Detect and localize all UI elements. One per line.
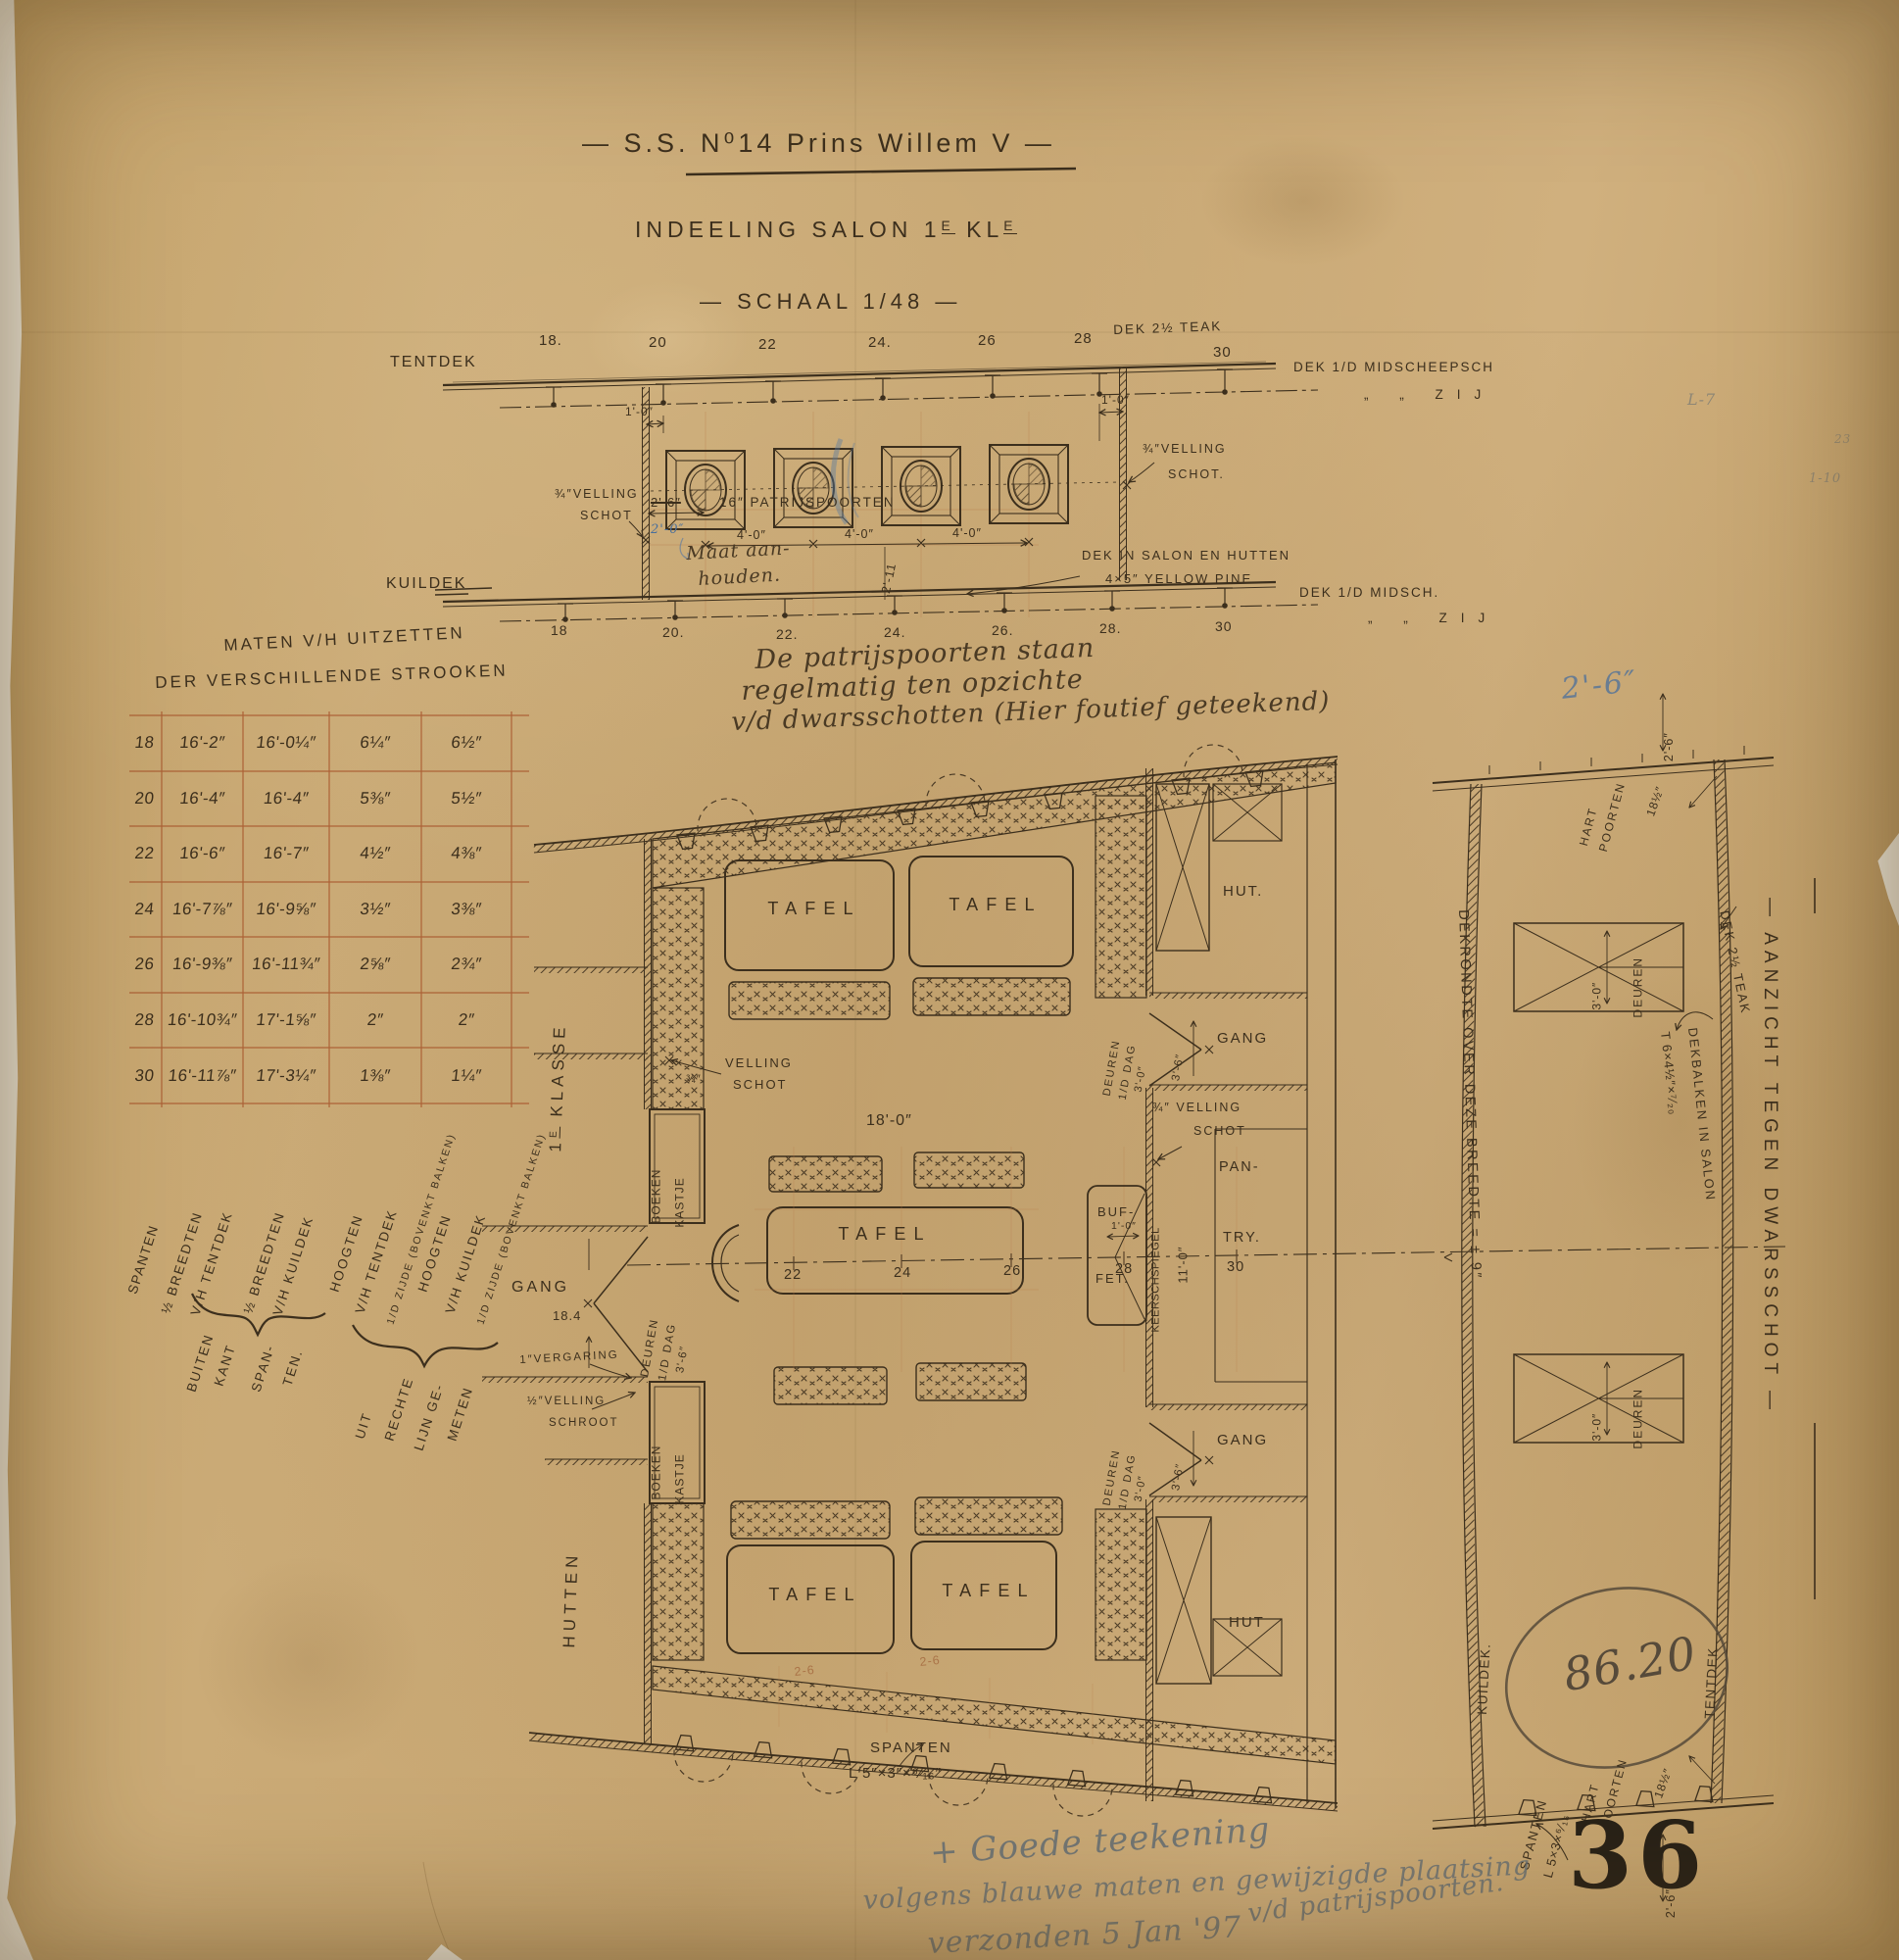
patrijspoorten-label: 16″ PATRIJSPOORTEN bbox=[719, 496, 896, 510]
frame-number-top: 30 bbox=[1213, 345, 1232, 361]
table-cell: 2⅝″ bbox=[326, 937, 424, 993]
dim-4ft: 4'-0″ bbox=[952, 527, 982, 540]
velling-schot-plan-label2: SCHOT bbox=[733, 1078, 788, 1092]
table-cell: 5½″ bbox=[418, 771, 514, 827]
spanten-profile-plan: L 5″×3″×⁶⁄₁₆″ bbox=[849, 1766, 942, 1782]
salon-width-dim: 18'-0″ bbox=[866, 1113, 912, 1130]
table-label: TAFEL bbox=[821, 1225, 949, 1244]
frame-number-bottom: 24. bbox=[884, 625, 905, 640]
table-cell: 6¼″ bbox=[326, 715, 424, 771]
table-label: TAFEL bbox=[751, 900, 878, 918]
mirror-label: KEERSCHSPIEGEL bbox=[1150, 1227, 1162, 1332]
pantry-width-dim: 11'-0″ bbox=[1176, 1247, 1190, 1284]
velling-frac-label: ¾″ bbox=[686, 1074, 702, 1086]
frame-number-bottom: 28. bbox=[1099, 621, 1121, 636]
drawing-subtitle: INDEELING SALON 1E KLE bbox=[635, 218, 1017, 241]
velling-schot-right-plan: ¾″ VELLING bbox=[1152, 1102, 1242, 1114]
table-cell: 2″ bbox=[326, 993, 424, 1049]
table-cell: 16'-7″ bbox=[240, 826, 332, 882]
drawing-title: — S.S. N⁰14 Prins Willem V — bbox=[582, 129, 1055, 157]
table-cell: 16'-9⅝″ bbox=[240, 882, 332, 938]
sheet-number-stamp: 36 bbox=[1568, 1807, 1707, 1905]
table-cell: 16'-9⅜″ bbox=[159, 937, 246, 993]
dek-midsch-label: DEK 1/D MIDSCH. bbox=[1299, 586, 1439, 600]
margin-scribble: L-7 bbox=[1687, 392, 1716, 409]
table-cell: 5⅜″ bbox=[326, 771, 424, 827]
frame-number-top: 26 bbox=[978, 333, 997, 349]
centerline-frame: 22 bbox=[784, 1268, 802, 1283]
frame-number-top: 22 bbox=[758, 337, 777, 353]
dek-midscheepsch-label: DEK 1/D MIDSCHEEPSCH bbox=[1293, 361, 1494, 374]
velling-schroot-label: ½″VELLING bbox=[527, 1396, 606, 1407]
ditto-zij-label2: „ „ ZIJ bbox=[1368, 612, 1498, 625]
ditto-zij-label: „ „ ZIJ bbox=[1364, 388, 1494, 402]
dim-2ft6-crossed: 2'-6″ bbox=[651, 496, 681, 510]
table-cell: 30 bbox=[124, 1049, 165, 1104]
title-underline bbox=[686, 169, 1076, 174]
table-label: TAFEL bbox=[925, 1582, 1052, 1600]
frame-number-top: 20 bbox=[649, 335, 667, 351]
dim-4ft: 4'-0″ bbox=[845, 528, 874, 541]
frame-number-bottom: 20. bbox=[662, 625, 684, 640]
section-linework bbox=[1433, 694, 1815, 1901]
buffet-dim: 1'-0″ bbox=[1111, 1221, 1137, 1232]
bookcase-label: BOEKEN bbox=[650, 1445, 662, 1500]
deuren-label-section: DEUREN bbox=[1631, 1388, 1644, 1449]
buffet-label: BUF- bbox=[1097, 1205, 1135, 1219]
table-cell: 16'-11¾″ bbox=[240, 937, 332, 993]
aanzicht-title: — AANZICHT TEGEN DWARSSCHOT — bbox=[1760, 898, 1779, 1415]
table-cell: 2″ bbox=[418, 993, 514, 1049]
drawing-scale: — SCHAAL 1/48 — bbox=[700, 290, 961, 313]
velling-schroot-label2: SCHROOT bbox=[549, 1417, 619, 1429]
margin-scribble: 23 bbox=[1834, 433, 1851, 446]
table-cell: 16'-4″ bbox=[240, 771, 332, 827]
gang-left-dim: 18.4 bbox=[553, 1309, 581, 1323]
dim-2ft0-pencil: 2'-0″ bbox=[651, 523, 684, 537]
table-cell: 16'-10¾″ bbox=[159, 993, 246, 1049]
hut-top-label: HUT. bbox=[1223, 884, 1263, 900]
table-cell: 3⅜″ bbox=[418, 882, 514, 938]
drawing-sheet: — S.S. N⁰14 Prins Willem V — INDEELING S… bbox=[0, 0, 1899, 1960]
gang-left-label: GANG bbox=[511, 1280, 569, 1297]
buffet-label2: FET. bbox=[1096, 1272, 1130, 1286]
centerline-frame: 26 bbox=[1003, 1264, 1021, 1279]
hutten-label: HUTTEN bbox=[560, 1550, 581, 1648]
measurement-table: 1816'-2″16'-0¼″6¼″6½″ 2016'-4″16'-4″5⅜″5… bbox=[127, 715, 511, 1103]
deuren-dim-section: 3'-0″ bbox=[1590, 1413, 1603, 1442]
pencil-2ft6-note: 2'-6″ bbox=[1560, 666, 1639, 705]
section-dim-2ft6-top: 2'-6″ bbox=[1663, 732, 1676, 761]
table-cell: 16'-2″ bbox=[159, 715, 246, 771]
centerline-frame: 30 bbox=[1227, 1260, 1244, 1275]
dek-salon-label: DEK IN SALON EN HUTTEN bbox=[1082, 549, 1290, 563]
table-cell: 1¼″ bbox=[418, 1049, 514, 1104]
frame-number-top: 24. bbox=[868, 335, 892, 351]
velling-schot-left-label2: SCHOT bbox=[580, 510, 633, 522]
table-cell: 16'-4″ bbox=[159, 771, 246, 827]
frame-number-bottom: 18 bbox=[551, 623, 568, 638]
frame-number-bottom: 22. bbox=[776, 627, 798, 642]
table-cell: 16'-11⅞″ bbox=[159, 1049, 246, 1104]
table-label: TAFEL bbox=[932, 896, 1059, 914]
hut-bottom-label: HUT bbox=[1229, 1615, 1265, 1631]
table-cell: 16'-6″ bbox=[159, 826, 246, 882]
table-cell: 6½″ bbox=[418, 715, 514, 771]
table-cell: 16'-0¼″ bbox=[240, 715, 332, 771]
table-cell: 16'-7⅞″ bbox=[159, 882, 246, 938]
dim-1ft-right: 1'-0″ bbox=[1101, 394, 1130, 407]
spanten-label-plan: SPANTEN bbox=[870, 1740, 952, 1756]
dim-1ft-left: 1'-0″ bbox=[625, 406, 654, 418]
table-label: TAFEL bbox=[752, 1586, 879, 1604]
margin-scribble: 1-10 bbox=[1809, 472, 1841, 486]
table-cell: 17'-1⅝″ bbox=[240, 993, 332, 1049]
pencil-2-6-mark: 2-6 bbox=[919, 1654, 941, 1669]
pantry-label2: TRY. bbox=[1223, 1231, 1261, 1246]
velling-schot-right-label2: SCHOT. bbox=[1168, 468, 1225, 481]
bookcase-label: KASTJE bbox=[673, 1177, 686, 1227]
table-cell: 24 bbox=[124, 882, 165, 938]
dek-salon-label2: 4×5″ YELLOW PINE bbox=[1105, 572, 1252, 586]
table-cell: 1⅜″ bbox=[326, 1049, 424, 1104]
velling-schot-right-label: ¾″VELLING bbox=[1143, 443, 1227, 456]
bookcase-label: BOEKEN bbox=[650, 1169, 662, 1224]
frame-number-top: 28 bbox=[1074, 331, 1093, 347]
velling-schot-plan-label: VELLING bbox=[725, 1056, 793, 1070]
table-cell: 2¾″ bbox=[418, 937, 514, 993]
centerline-frame: 24 bbox=[894, 1266, 911, 1281]
kuildek-label: KUILDEK bbox=[386, 576, 466, 593]
pantry-label: PAN- bbox=[1219, 1160, 1260, 1175]
velling-schot-left-label: ¾″VELLING bbox=[555, 488, 639, 501]
deuren-dim-section: 3'-0″ bbox=[1590, 982, 1603, 1010]
table-cell: 17'-3¼″ bbox=[240, 1049, 332, 1104]
gang-right-bottom-label: GANG bbox=[1217, 1433, 1268, 1448]
tentdek-label: TENTDEK bbox=[390, 355, 477, 371]
frame-number-bottom: 30 bbox=[1215, 619, 1233, 634]
deuren-label-section: DEUREN bbox=[1631, 956, 1644, 1018]
pencil-2-6-mark: 2-6 bbox=[794, 1664, 815, 1679]
frame-number-top: 18. bbox=[539, 333, 562, 349]
bookcase-label: KASTJE bbox=[673, 1453, 686, 1503]
table-cell: 3½″ bbox=[326, 882, 424, 938]
table-cell: 20 bbox=[124, 771, 165, 827]
gang-right-top-label: GANG bbox=[1217, 1031, 1268, 1047]
table-cell: 4⅜″ bbox=[418, 826, 514, 882]
velling-schot-right-plan2: SCHOT bbox=[1193, 1125, 1246, 1138]
table-cell: 4½″ bbox=[326, 826, 424, 882]
